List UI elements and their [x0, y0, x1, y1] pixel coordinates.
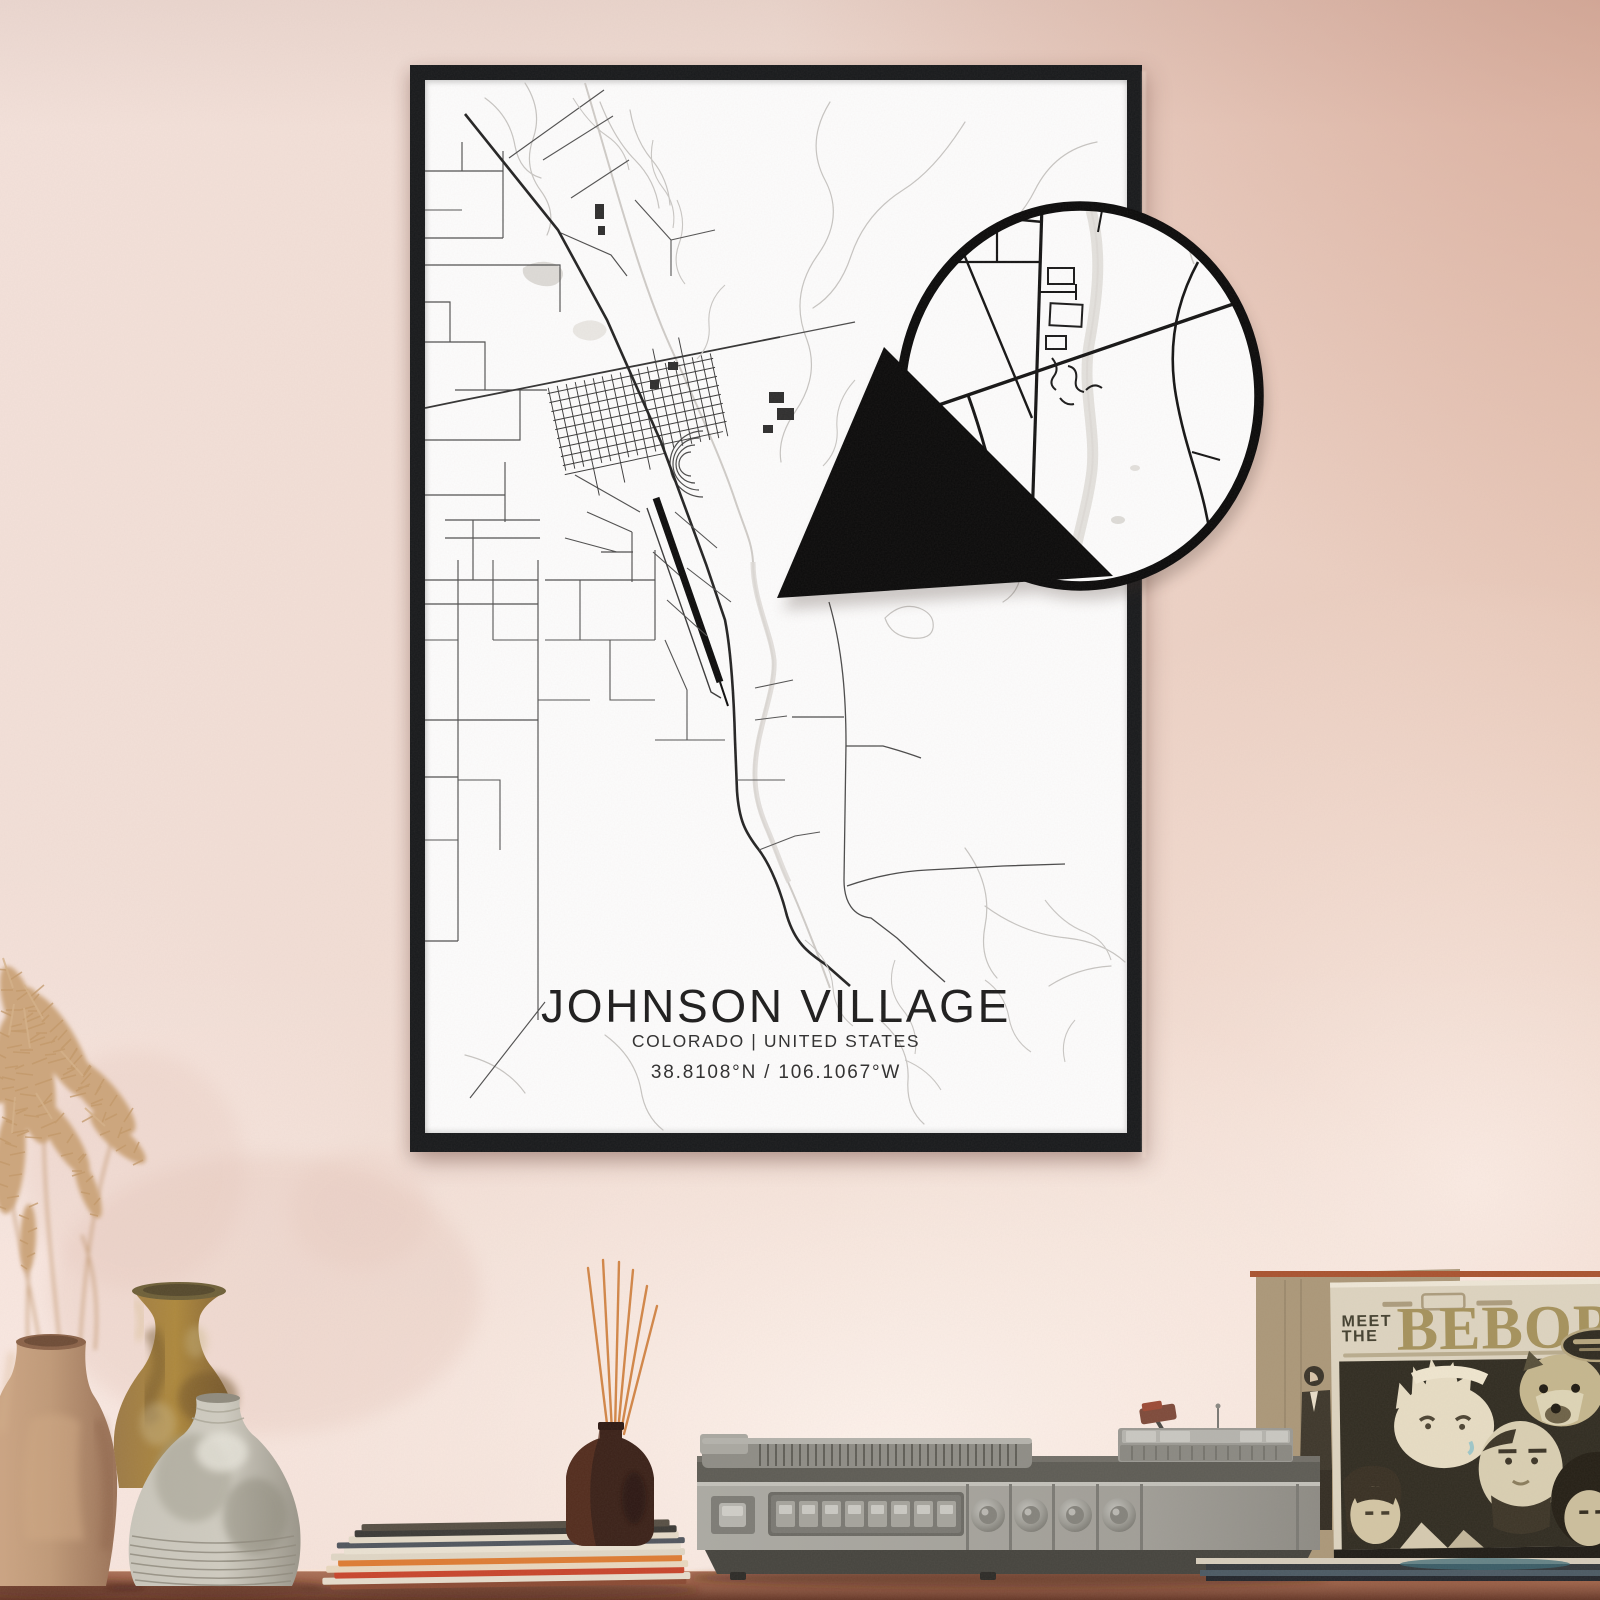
svg-text:THE: THE — [1342, 1328, 1379, 1346]
